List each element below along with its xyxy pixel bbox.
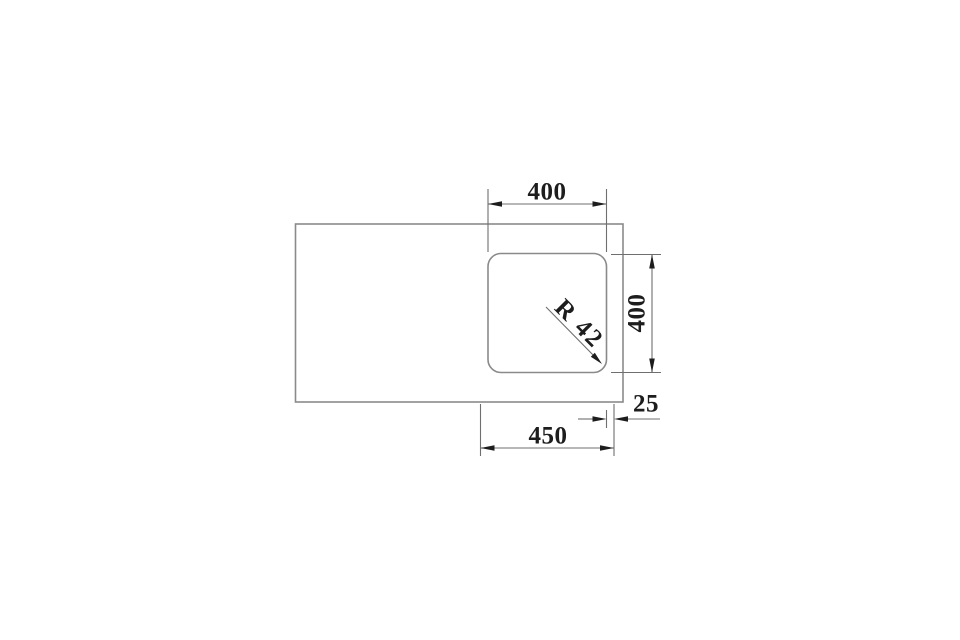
dim-offset-arrow-left xyxy=(593,416,607,422)
dim-top-arrow-left xyxy=(488,201,502,207)
dim-offset-arrow-right xyxy=(614,416,628,422)
dim-bottom-arrow-right xyxy=(600,445,614,451)
dim-right-arrow-bottom xyxy=(649,359,655,373)
sink-cutout-outline xyxy=(488,254,607,373)
dim-overall-width-label: 450 xyxy=(529,424,568,449)
dim-cutout-width-label: 400 xyxy=(528,180,567,205)
drawing-linework xyxy=(0,0,960,640)
dim-right-arrow-top xyxy=(649,255,655,269)
dim-top-arrow-right xyxy=(593,201,607,207)
technical-drawing-canvas: 400 400 R 42 450 25 xyxy=(0,0,960,640)
dim-bottom-arrow-left xyxy=(481,445,495,451)
dim-edge-offset-label: 25 xyxy=(633,392,659,417)
dim-cutout-depth-label: 400 xyxy=(625,294,650,333)
